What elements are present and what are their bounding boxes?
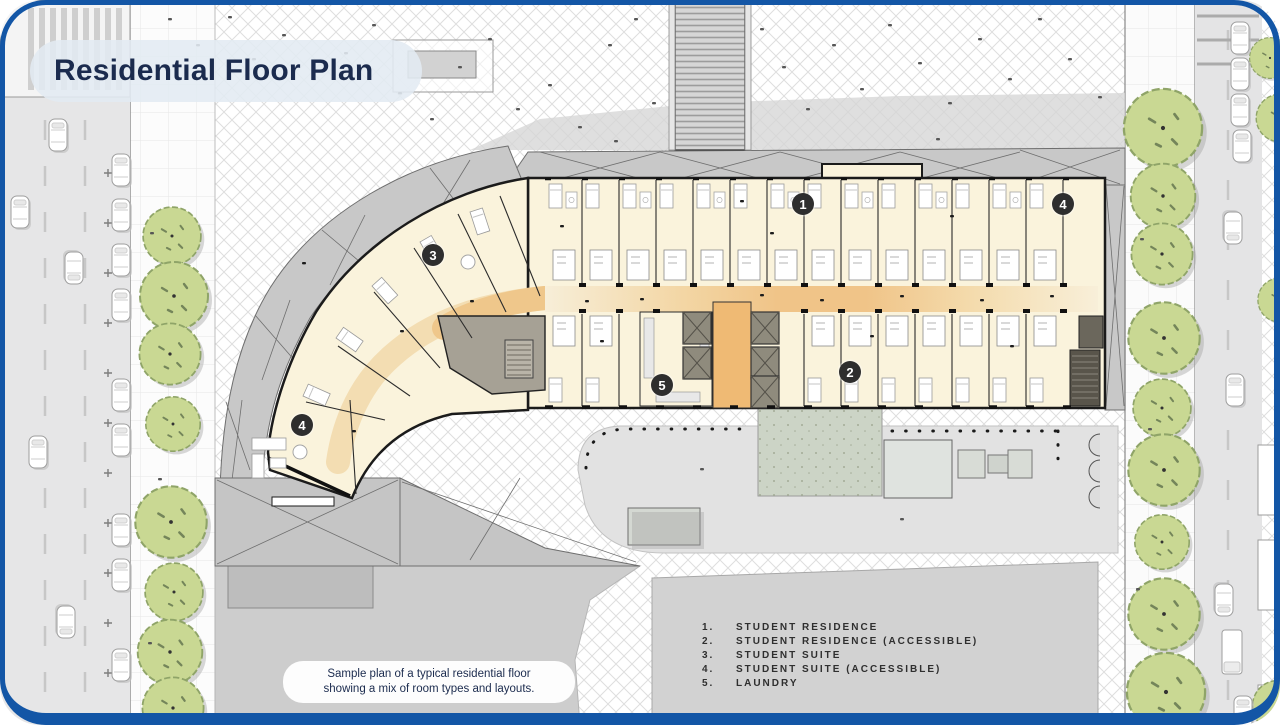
marker-number: 4 [1059, 197, 1066, 212]
marker-badge-4-east: 4 [1052, 193, 1074, 215]
legend-row: 1. STUDENT RESIDENCE [702, 622, 978, 633]
lobby [713, 302, 751, 408]
legend-label: STUDENT RESIDENCE [736, 622, 878, 633]
courtyard [578, 408, 1118, 553]
legend-number: 4. [702, 664, 736, 675]
legend-label: STUDENT SUITE [736, 650, 841, 661]
marker-badge-1: 1 [792, 193, 814, 215]
floor-plan-page: Residential Floor Plan Sample plan of a … [0, 0, 1280, 725]
legend-number: 3. [702, 650, 736, 661]
balcony-arcs [1089, 434, 1100, 508]
marker-badge-2: 2 [839, 361, 861, 383]
caption-bubble: Sample plan of a typical residential flo… [283, 661, 575, 703]
wing-end-terrace [272, 497, 334, 506]
legend-label: STUDENT SUITE (ACCESSIBLE) [736, 664, 941, 675]
legend-row: 4. STUDENT SUITE (ACCESSIBLE) [702, 664, 978, 675]
legend: 1. STUDENT RESIDENCE 2. STUDENT RESIDENC… [702, 622, 978, 692]
marker-badge-5: 5 [651, 374, 673, 396]
marker-number: 4 [298, 418, 305, 433]
legend-row: 3. STUDENT SUITE [702, 650, 978, 661]
caption-line-1: Sample plan of a typical residential flo… [293, 667, 565, 682]
legend-row: 2. STUDENT RESIDENCE (ACCESSIBLE) [702, 636, 978, 647]
legend-number: 5. [702, 678, 736, 689]
marker-number: 1 [799, 197, 806, 212]
legend-row: 5. LAUNDRY [702, 678, 978, 689]
site-plan-scene: Residential Floor Plan Sample plan of a … [0, 0, 1280, 725]
marker-number: 2 [846, 365, 853, 380]
legend-label: STUDENT RESIDENCE (ACCESSIBLE) [736, 636, 978, 647]
legend-number: 2. [702, 636, 736, 647]
marker-number: 3 [429, 248, 436, 263]
page-title: Residential Floor Plan [30, 40, 422, 102]
title-pill: Residential Floor Plan [30, 40, 422, 102]
marker-badge-3: 3 [422, 244, 444, 266]
site-plan-drawing [0, 0, 1280, 725]
legend-number: 1. [702, 622, 736, 633]
legend-label: LAUNDRY [736, 678, 799, 689]
bridge [669, 0, 751, 150]
caption-line-2: showing a mix of room types and layouts. [293, 682, 565, 697]
marker-badge-4-west: 4 [291, 414, 313, 436]
marker-number: 5 [658, 378, 665, 393]
